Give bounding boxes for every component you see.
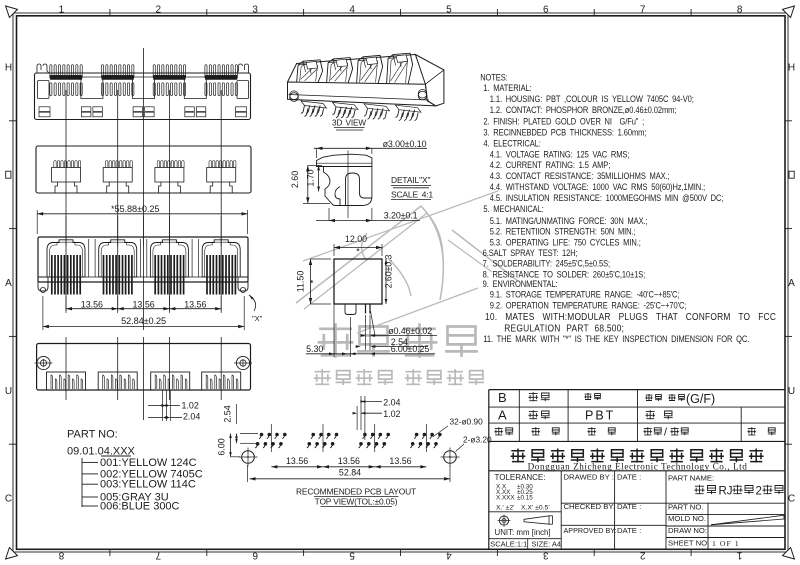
svg-text:X.' ±2': X.' ±2' bbox=[496, 505, 514, 512]
svg-text:DATE :: DATE : bbox=[617, 502, 641, 511]
svg-text:DETAIL"X": DETAIL"X" bbox=[391, 175, 430, 185]
svg-text:ø0.46±0.02: ø0.46±0.02 bbox=[388, 326, 432, 336]
svg-text:2.60±0.3: 2.60±0.3 bbox=[383, 254, 393, 288]
svg-text:CHECKED BY:: CHECKED BY: bbox=[564, 502, 616, 511]
svg-text:13.56: 13.56 bbox=[389, 456, 411, 466]
svg-text:13.56: 13.56 bbox=[286, 456, 308, 466]
svg-text:3D VIEW: 3D VIEW bbox=[332, 118, 366, 127]
svg-text:6.SALT SPRAY TEST: 12H;: 6.SALT SPRAY TEST: 12H; bbox=[483, 247, 578, 258]
svg-text:7: 7 bbox=[640, 5, 646, 16]
svg-text:2: 2 bbox=[639, 550, 645, 561]
svg-text:ø3.00±0.10: ø3.00±0.10 bbox=[383, 139, 427, 149]
svg-text:4. ELECTRICAL:: 4. ELECTRICAL: bbox=[483, 138, 540, 149]
svg-text:U: U bbox=[788, 386, 795, 397]
svg-text:52.84±0.25: 52.84±0.25 bbox=[121, 316, 166, 326]
svg-text:DATE :: DATE : bbox=[617, 473, 641, 482]
svg-text:*55.88±0.25: *55.88±0.25 bbox=[111, 204, 159, 214]
svg-text:12.00: 12.00 bbox=[345, 234, 367, 244]
svg-text:PBT: PBT bbox=[585, 409, 615, 423]
svg-text:PART NAME:: PART NAME: bbox=[668, 474, 714, 483]
svg-text:11. THE MARK WITH "*" IS THE K: 11. THE MARK WITH "*" IS THE KEY INSPECT… bbox=[483, 333, 749, 344]
svg-text:2-ø3.20: 2-ø3.20 bbox=[463, 435, 492, 445]
svg-text:5.3. OPERATING LIFE: 750 CYCLE: 5.3. OPERATING LIFE: 750 CYCLES MIN.; bbox=[490, 237, 641, 248]
svg-text:C: C bbox=[5, 494, 12, 505]
svg-text:SCALE:1:1: SCALE:1:1 bbox=[490, 539, 527, 548]
svg-text:4.2. CURRENT RATING: 1.5 AMP;: 4.2. CURRENT RATING: 1.5 AMP; bbox=[490, 159, 610, 170]
svg-text:9.1. STORAGE TEMPERATURE RANGE: 9.1. STORAGE TEMPERATURE RANGE: -40'C~+8… bbox=[490, 289, 680, 300]
svg-text:4: 4 bbox=[446, 550, 452, 561]
svg-text:1.70: 1.70 bbox=[305, 169, 315, 186]
svg-text:13.56: 13.56 bbox=[132, 299, 154, 309]
svg-text:7: 7 bbox=[155, 550, 161, 561]
svg-text:5.1. MATING/UNMATING FORCE: 30: 5.1. MATING/UNMATING FORCE: 30N MAX.; bbox=[490, 215, 648, 226]
svg-text:1 OF 1: 1 OF 1 bbox=[712, 539, 740, 548]
svg-text:006:BLUE 300C: 006:BLUE 300C bbox=[100, 501, 180, 513]
svg-text:13.56: 13.56 bbox=[338, 456, 360, 466]
svg-text:"X": "X" bbox=[252, 314, 263, 323]
svg-text:C: C bbox=[788, 494, 795, 505]
svg-text:1.1. HOUSING: PBT ,COLOUR IS Y: 1.1. HOUSING: PBT ,COLOUR IS YELLOW 7405… bbox=[490, 93, 694, 104]
svg-text:1. MATERIAL:: 1. MATERIAL: bbox=[483, 82, 531, 93]
svg-text:7. SOLDERABILITY: 245±5'C,5±0.: 7. SOLDERABILITY: 245±5'C,5±0.5S; bbox=[483, 258, 610, 269]
svg-text:1: 1 bbox=[59, 5, 65, 16]
svg-text:3. RECINNEBDED PCB THICKNESS:: 3. RECINNEBDED PCB THICKNESS: 1.60mm; bbox=[483, 127, 646, 138]
svg-text:*: * bbox=[309, 279, 319, 283]
svg-text:SCALE 4:1: SCALE 4:1 bbox=[391, 189, 433, 199]
svg-text:H: H bbox=[788, 62, 795, 73]
svg-text:5.2. RETENTIION STRENGTH: 50N: 5.2. RETENTIION STRENGTH: 50N MIN.; bbox=[490, 226, 636, 237]
svg-text:52.84: 52.84 bbox=[339, 468, 361, 478]
svg-text:6.00±0.25: 6.00±0.25 bbox=[391, 344, 430, 354]
svg-text:UNIT: mm [inch]: UNIT: mm [inch] bbox=[495, 528, 551, 537]
svg-text:4.1. VOLTAGE RATING: 125 VAC R: 4.1. VOLTAGE RATING: 125 VAC RMS; bbox=[490, 149, 630, 160]
svg-text:5: 5 bbox=[446, 5, 452, 16]
svg-text:1.02: 1.02 bbox=[383, 409, 400, 419]
svg-text:5. MECHANICAL:: 5. MECHANICAL: bbox=[483, 203, 543, 214]
svg-text:NOTES:: NOTES: bbox=[480, 72, 507, 83]
svg-text:TOLERANCE:: TOLERANCE: bbox=[495, 473, 546, 482]
svg-text:H: H bbox=[5, 62, 12, 73]
svg-text:PART NO.: PART NO. bbox=[668, 503, 703, 512]
svg-text:8: 8 bbox=[58, 550, 64, 561]
svg-text:(G/F): (G/F) bbox=[686, 392, 715, 406]
svg-text:U: U bbox=[5, 386, 12, 397]
svg-text:SHEET NO.: SHEET NO. bbox=[668, 538, 709, 547]
svg-text:DRAWED BY :: DRAWED BY : bbox=[564, 473, 614, 482]
svg-text:2. FINISH: PLATED GOLD OVER NI: 2. FINISH: PLATED GOLD OVER NI G/Fu" ; bbox=[483, 116, 644, 127]
svg-text:B: B bbox=[498, 390, 507, 405]
svg-text:4.3. CONTACT RESISTANCE: 35MIL: 4.3. CONTACT RESISTANCE: 35MILLIOHMS MAX… bbox=[490, 170, 670, 181]
svg-text:2.54: 2.54 bbox=[223, 405, 233, 422]
svg-text:6: 6 bbox=[543, 5, 549, 16]
svg-text:11.50: 11.50 bbox=[295, 271, 305, 293]
svg-text:6: 6 bbox=[252, 550, 258, 561]
svg-text:RECOMMENDED PCB LAYOUT: RECOMMENDED PCB LAYOUT bbox=[296, 486, 416, 496]
svg-text:32-ø0.90: 32-ø0.90 bbox=[450, 416, 484, 426]
svg-text:SIZE: A4: SIZE: A4 bbox=[532, 539, 562, 548]
svg-text:X.X' ±0.5': X.X' ±0.5' bbox=[521, 505, 550, 512]
svg-text:2: 2 bbox=[756, 485, 762, 497]
svg-text:9.2. OPERATION TEMPERATURE RAN: 9.2. OPERATION TEMPERATURE RANGE: -25'C~… bbox=[490, 300, 687, 311]
svg-text:4.5. INSULATION RESISTANCE: 10: 4.5. INSULATION RESISTANCE: 1000MEGOHMS … bbox=[490, 192, 724, 203]
svg-text:A: A bbox=[788, 278, 795, 289]
svg-text:3: 3 bbox=[252, 5, 258, 16]
svg-text:5: 5 bbox=[349, 550, 355, 561]
svg-text:±0.15: ±0.15 bbox=[517, 495, 533, 502]
svg-text:PART NO:: PART NO: bbox=[67, 429, 118, 441]
svg-text:001:YELLOW 124C: 001:YELLOW 124C bbox=[100, 457, 197, 469]
svg-text:3: 3 bbox=[543, 550, 549, 561]
svg-text:4: 4 bbox=[349, 5, 355, 16]
svg-text:TOP VIEW(TOL:±0.05): TOP VIEW(TOL:±0.05) bbox=[315, 496, 398, 506]
svg-text:9. ENVIRONMENTAL:: 9. ENVIRONMENTAL: bbox=[483, 278, 558, 289]
svg-text:X.XXX: X.XXX bbox=[496, 495, 515, 502]
svg-text:MOLD NO.: MOLD NO. bbox=[668, 514, 706, 523]
svg-text:4.4. WITHSTAND VOLTAGE: 1000 V: 4.4. WITHSTAND VOLTAGE: 1000 VAC RMS 50(… bbox=[490, 181, 705, 192]
svg-text:Dongguan Zhicheng Electronic T: Dongguan Zhicheng Electronic Technology … bbox=[528, 461, 748, 471]
svg-text:6.00: 6.00 bbox=[217, 438, 227, 455]
svg-text:2.04: 2.04 bbox=[183, 412, 200, 422]
svg-text:A: A bbox=[498, 408, 507, 423]
svg-text:003:YELLOW 114C: 003:YELLOW 114C bbox=[100, 479, 196, 491]
svg-text:3.20±0.1: 3.20±0.1 bbox=[384, 211, 418, 221]
svg-text:13.56: 13.56 bbox=[81, 299, 103, 309]
svg-text:1: 1 bbox=[736, 550, 742, 561]
svg-text:2.04: 2.04 bbox=[383, 397, 400, 407]
svg-text:A: A bbox=[5, 278, 12, 289]
svg-text:APPROVED BY:: APPROVED BY: bbox=[564, 526, 617, 535]
svg-text:1.02: 1.02 bbox=[182, 400, 199, 410]
svg-text:2: 2 bbox=[156, 5, 162, 16]
svg-text:RJ: RJ bbox=[719, 485, 733, 497]
svg-text:13.56: 13.56 bbox=[184, 299, 206, 309]
svg-text:*: * bbox=[356, 247, 360, 258]
svg-text:5.30: 5.30 bbox=[306, 344, 323, 354]
svg-text:DRAW NO:: DRAW NO: bbox=[668, 526, 707, 535]
svg-text:8: 8 bbox=[737, 5, 743, 16]
svg-text:1.2. CONTACT: PHOSPHOR BRONZE,: 1.2. CONTACT: PHOSPHOR BRONZE,ø0.46±0.02… bbox=[490, 104, 677, 115]
svg-text:2.60: 2.60 bbox=[290, 171, 300, 188]
svg-text:DATE :: DATE : bbox=[617, 526, 641, 535]
